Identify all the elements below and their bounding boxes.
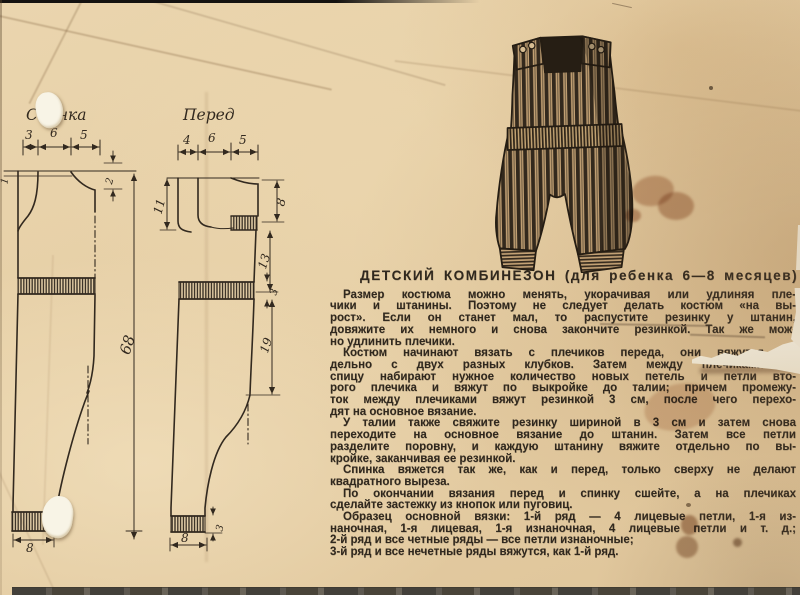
scan-edge-left <box>0 0 2 595</box>
ink-stain <box>658 192 694 220</box>
dim-back-side-width: 5 <box>80 128 88 142</box>
front-piece-label: Перед <box>182 106 235 124</box>
paper-speck <box>709 86 713 90</box>
ink-stain <box>733 538 742 547</box>
dim-back-total-length: 68 <box>116 333 139 357</box>
dim-front-neck-width: 6 <box>208 131 216 145</box>
paragraph: Спинка вяжется так же, как и перед, толь… <box>330 465 796 488</box>
pattern-diagram: Спинка 3 6 5 1 2 <box>0 88 300 560</box>
dim-front-waist-rib: 3 <box>268 288 280 297</box>
dim-front-armhole-to-waist: 13 <box>255 252 273 271</box>
paragraph: У талии также свяжите резинку шириной в … <box>330 418 796 465</box>
romper-illustration <box>465 18 655 273</box>
text-line: 3-й ряд и все нечетные ряды вяжутся, как… <box>330 547 796 559</box>
paragraph: Размер костюма можно менять, укорачивая … <box>330 290 796 349</box>
dim-front-cuff-rib: 3 <box>214 524 226 533</box>
pattern-piece-back: Спинка 3 6 5 1 2 <box>0 106 142 555</box>
dim-back-strap-width: 3 <box>25 128 33 142</box>
scan-edge-top <box>0 0 480 3</box>
dim-front-strap-width: 4 <box>182 133 191 147</box>
ink-stain <box>625 209 641 222</box>
button-icon <box>528 42 535 49</box>
dim-front-armhole-depth: 8 <box>273 196 289 207</box>
dim-front-strap-depth: 11 <box>151 197 168 215</box>
scan-edge-bottom <box>12 587 800 595</box>
dim-back-neck-depth: 2 <box>104 177 117 187</box>
text-line: ток между плечиками вяжут резинкой 3 см,… <box>330 395 796 407</box>
dim-back-cuff-width: 8 <box>26 541 34 555</box>
text-line: квадратного выреза. <box>330 477 796 489</box>
paper-speck <box>686 503 691 507</box>
button-icon <box>520 46 527 53</box>
romper-neck-opening <box>542 37 583 72</box>
paragraph: Образец основной вязки: 1-й ряд — 4 лице… <box>330 512 796 559</box>
ink-stain <box>676 536 698 558</box>
dim-front-waist-to-crotch: 19 <box>257 336 275 355</box>
article-text-block: ДЕТСКИЙ КОМБИНЕЗОН (для ребенка 6—8 меся… <box>330 270 796 559</box>
text-line: разделите поровну, и каждую штанину вяжи… <box>330 442 796 454</box>
text-line: Образец основной вязки: 1-й ряд — 4 лице… <box>330 512 796 524</box>
romper-left-strap-tab <box>513 38 544 70</box>
dim-front-side-width: 5 <box>239 133 247 147</box>
dim-back-neck-width: 6 <box>50 126 58 140</box>
pattern-piece-front: Перед 4 6 5 11 <box>151 106 289 551</box>
scanned-pattern-page: Спинка 3 6 5 1 2 <box>0 0 800 595</box>
paragraph: По окончании вязания перед и спинку сшей… <box>330 489 796 512</box>
ink-stain <box>681 515 698 535</box>
article-title: ДЕТСКИЙ КОМБИНЕЗОН (для ребенка 6—8 меся… <box>330 270 796 282</box>
dim-front-cuff-width: 8 <box>181 531 189 545</box>
